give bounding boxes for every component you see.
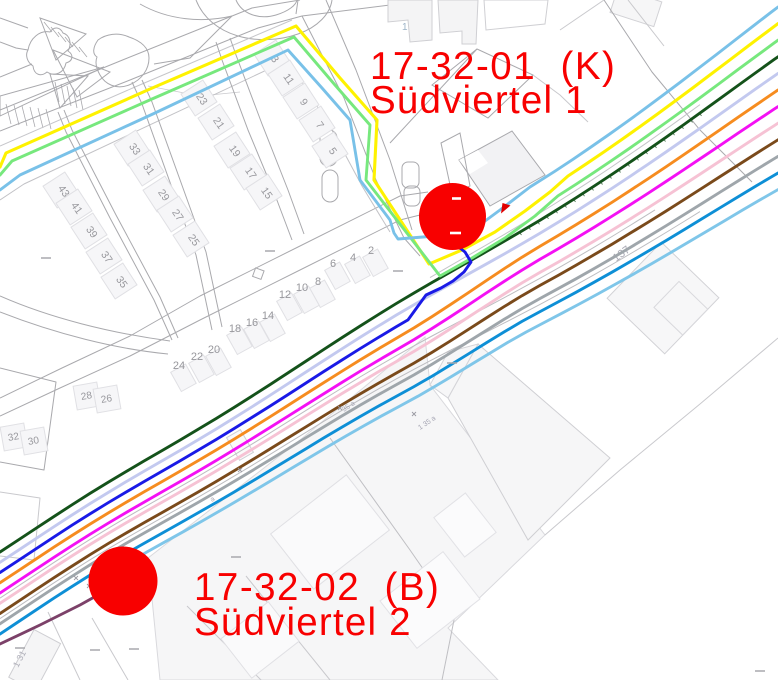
svg-text:24: 24 xyxy=(173,360,185,372)
svg-text:2: 2 xyxy=(368,245,374,257)
svg-text:12: 12 xyxy=(279,289,291,301)
svg-text:1: 1 xyxy=(402,22,408,33)
svg-text:8: 8 xyxy=(315,276,321,288)
svg-text:Südviertel 1: Südviertel 1 xyxy=(370,79,588,122)
svg-text:22: 22 xyxy=(191,351,203,363)
svg-text:Südviertel 2: Südviertel 2 xyxy=(194,601,412,644)
svg-text:14: 14 xyxy=(262,310,274,322)
svg-text:6: 6 xyxy=(330,258,336,270)
svg-text:10: 10 xyxy=(296,282,308,294)
svg-text:20: 20 xyxy=(208,344,220,356)
svg-text:4: 4 xyxy=(350,252,356,264)
svg-text:16: 16 xyxy=(246,317,258,329)
svg-text:18: 18 xyxy=(229,323,241,335)
